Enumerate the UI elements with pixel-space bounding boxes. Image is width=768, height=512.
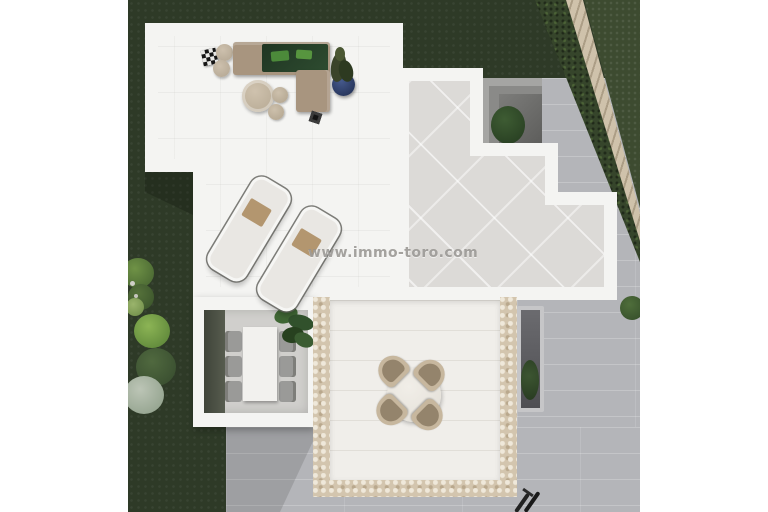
potted-plant [326, 45, 362, 101]
mosaic-border-left [313, 297, 330, 497]
sofa-cushion [296, 49, 313, 59]
dining-chair [225, 356, 242, 377]
planter-slot [517, 306, 544, 412]
dining-chair [279, 356, 296, 377]
side-table [268, 104, 284, 120]
dining-room [193, 297, 313, 427]
mosaic-border-right [500, 297, 517, 497]
shrub [620, 296, 640, 320]
render-canvas: www.immo-toro.com [0, 0, 768, 512]
handle-object [518, 490, 548, 512]
dining-chair [225, 331, 242, 352]
mosaic-border-bottom [313, 480, 517, 497]
patio-tree [491, 106, 525, 144]
sunken-patio [483, 78, 542, 148]
planter-plant [521, 360, 539, 400]
watermark: www.immo-toro.com [308, 245, 468, 261]
lounger-towel [241, 198, 272, 228]
garden-stone [130, 281, 135, 286]
dining-chair [279, 381, 296, 402]
sofa-cushion [271, 50, 290, 62]
sofa-chaise [296, 70, 330, 112]
shrub [134, 314, 170, 348]
dining-plant [272, 303, 316, 355]
dining-room-glass-shadow [204, 310, 225, 413]
aerial-photo: www.immo-toro.com [128, 0, 640, 512]
dining-chair [225, 381, 242, 402]
garden-stone [134, 294, 138, 298]
pouf [213, 60, 230, 77]
pouf [216, 44, 233, 61]
side-table [272, 87, 288, 103]
